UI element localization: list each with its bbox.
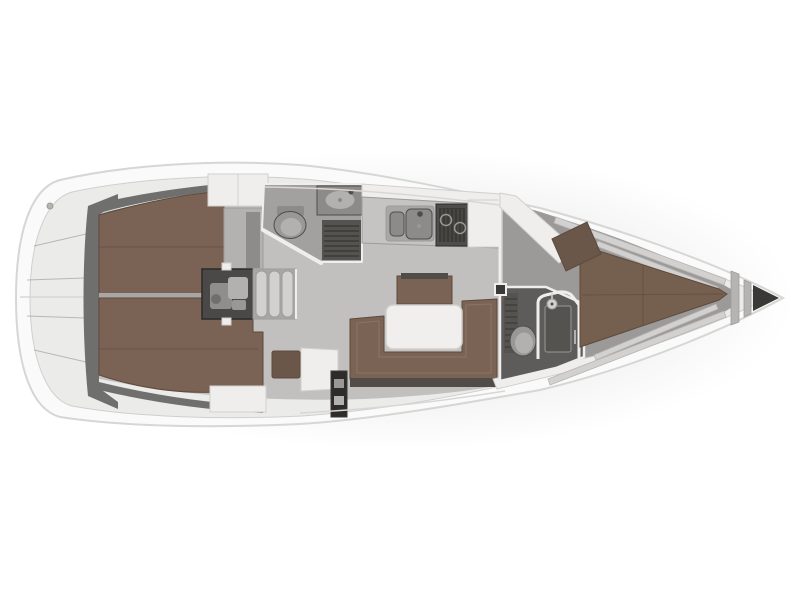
door-latch — [495, 284, 506, 295]
yacht-floor-plan-canvas — [0, 0, 800, 600]
hatch-hinge — [222, 263, 231, 270]
sideboard-top — [401, 273, 448, 279]
double-sink — [386, 206, 434, 241]
companionway-steps — [253, 269, 296, 319]
yacht-floor-plan — [0, 0, 800, 600]
sideboard — [397, 276, 452, 304]
faucet — [417, 211, 423, 217]
galley-cabinet — [468, 200, 499, 247]
toilet — [274, 206, 306, 239]
shower-grate — [322, 220, 361, 260]
aft-cabinet-bottom — [210, 386, 266, 412]
bow-bulkhead — [731, 271, 739, 325]
hatch-hinge — [222, 318, 231, 325]
bow-bulkhead — [744, 280, 751, 317]
post-detail — [334, 396, 344, 405]
step-tread — [256, 271, 267, 317]
post-detail — [334, 379, 344, 388]
toilet — [510, 326, 536, 356]
stove — [436, 204, 468, 246]
engine-compartment — [202, 263, 253, 325]
cabin-divider-wall — [99, 293, 202, 298]
deck-fitting — [47, 203, 53, 209]
transom-bulkhead — [84, 206, 100, 396]
settee-plinth — [350, 378, 497, 387]
nav-seat — [272, 351, 300, 378]
salon-table — [386, 305, 462, 349]
step-tread — [269, 271, 280, 317]
step-tread — [282, 271, 293, 317]
wardrobe-panel — [246, 212, 260, 268]
